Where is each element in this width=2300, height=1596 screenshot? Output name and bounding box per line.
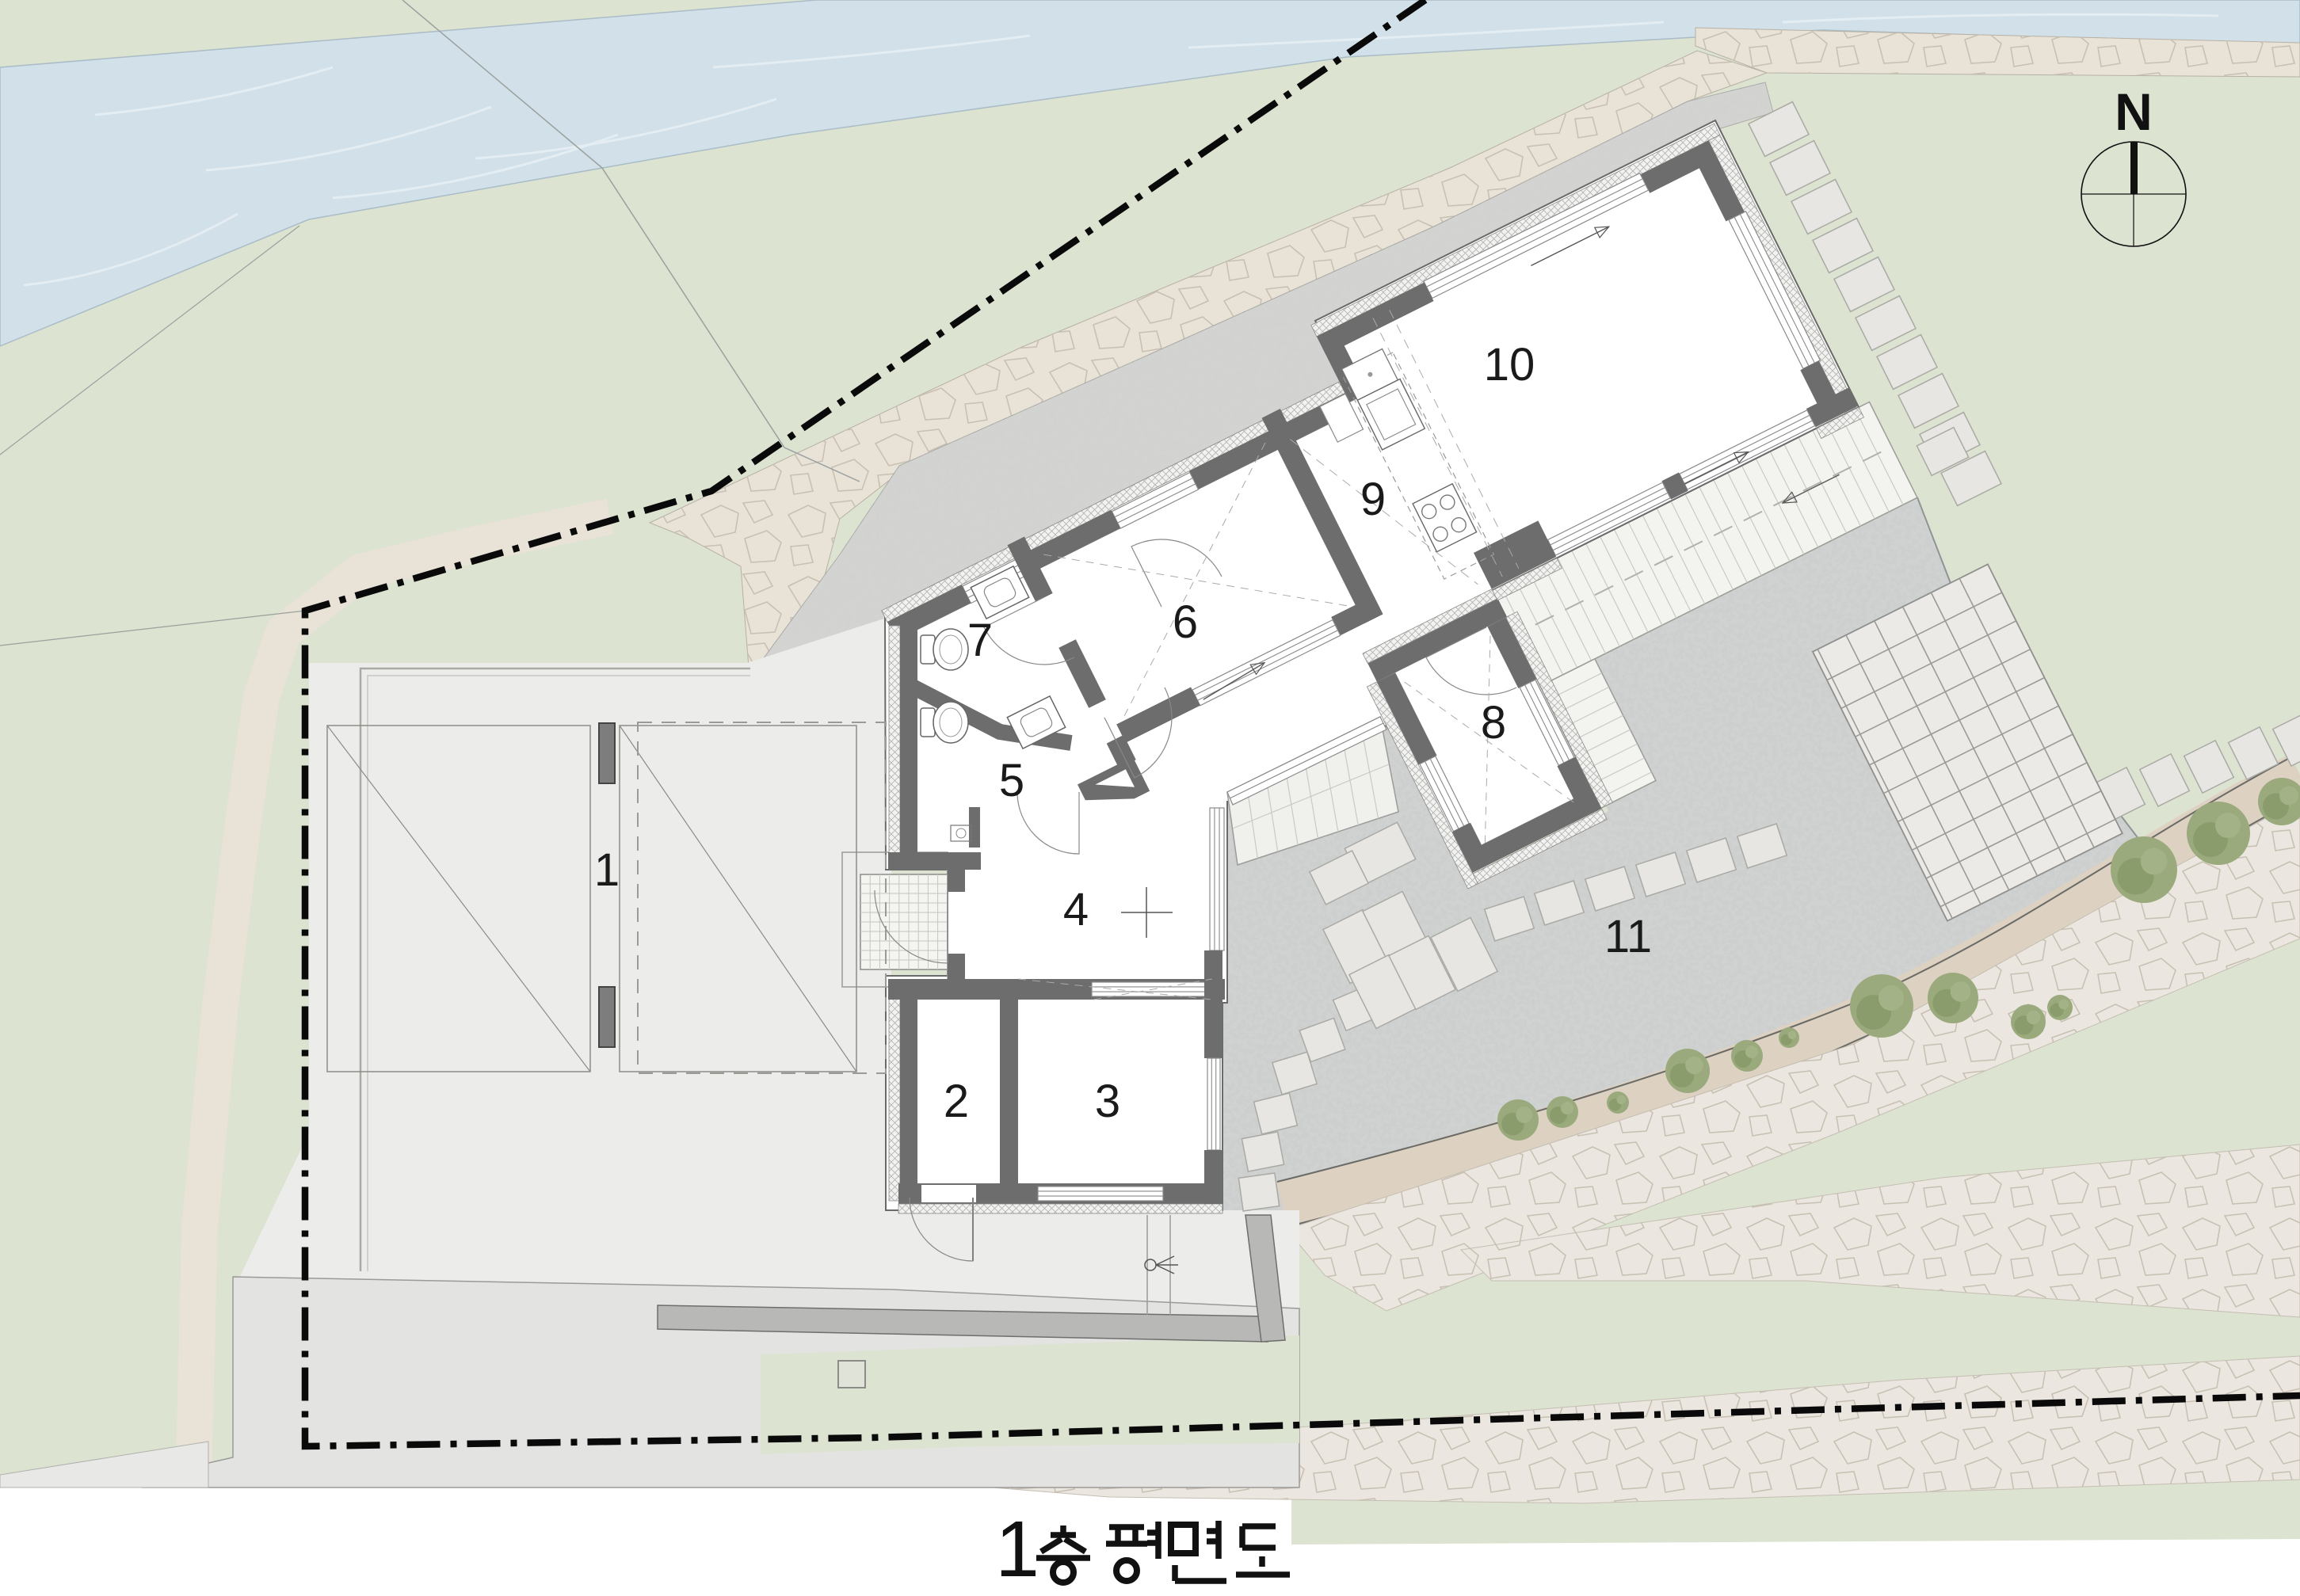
svg-text:6: 6 <box>1173 596 1198 648</box>
svg-text:3: 3 <box>1095 1076 1120 1127</box>
svg-text:10: 10 <box>1484 339 1535 390</box>
svg-text:9: 9 <box>1360 474 1386 525</box>
svg-text:11: 11 <box>1604 911 1652 962</box>
svg-text:2: 2 <box>944 1076 969 1127</box>
svg-text:4: 4 <box>1063 884 1089 935</box>
svg-text:8: 8 <box>1481 697 1506 748</box>
svg-text:1: 1 <box>995 1505 1039 1594</box>
svg-text:7: 7 <box>967 615 993 666</box>
svg-text:5: 5 <box>999 755 1024 806</box>
svg-text:N: N <box>2115 82 2153 141</box>
svg-text:1: 1 <box>594 844 620 896</box>
